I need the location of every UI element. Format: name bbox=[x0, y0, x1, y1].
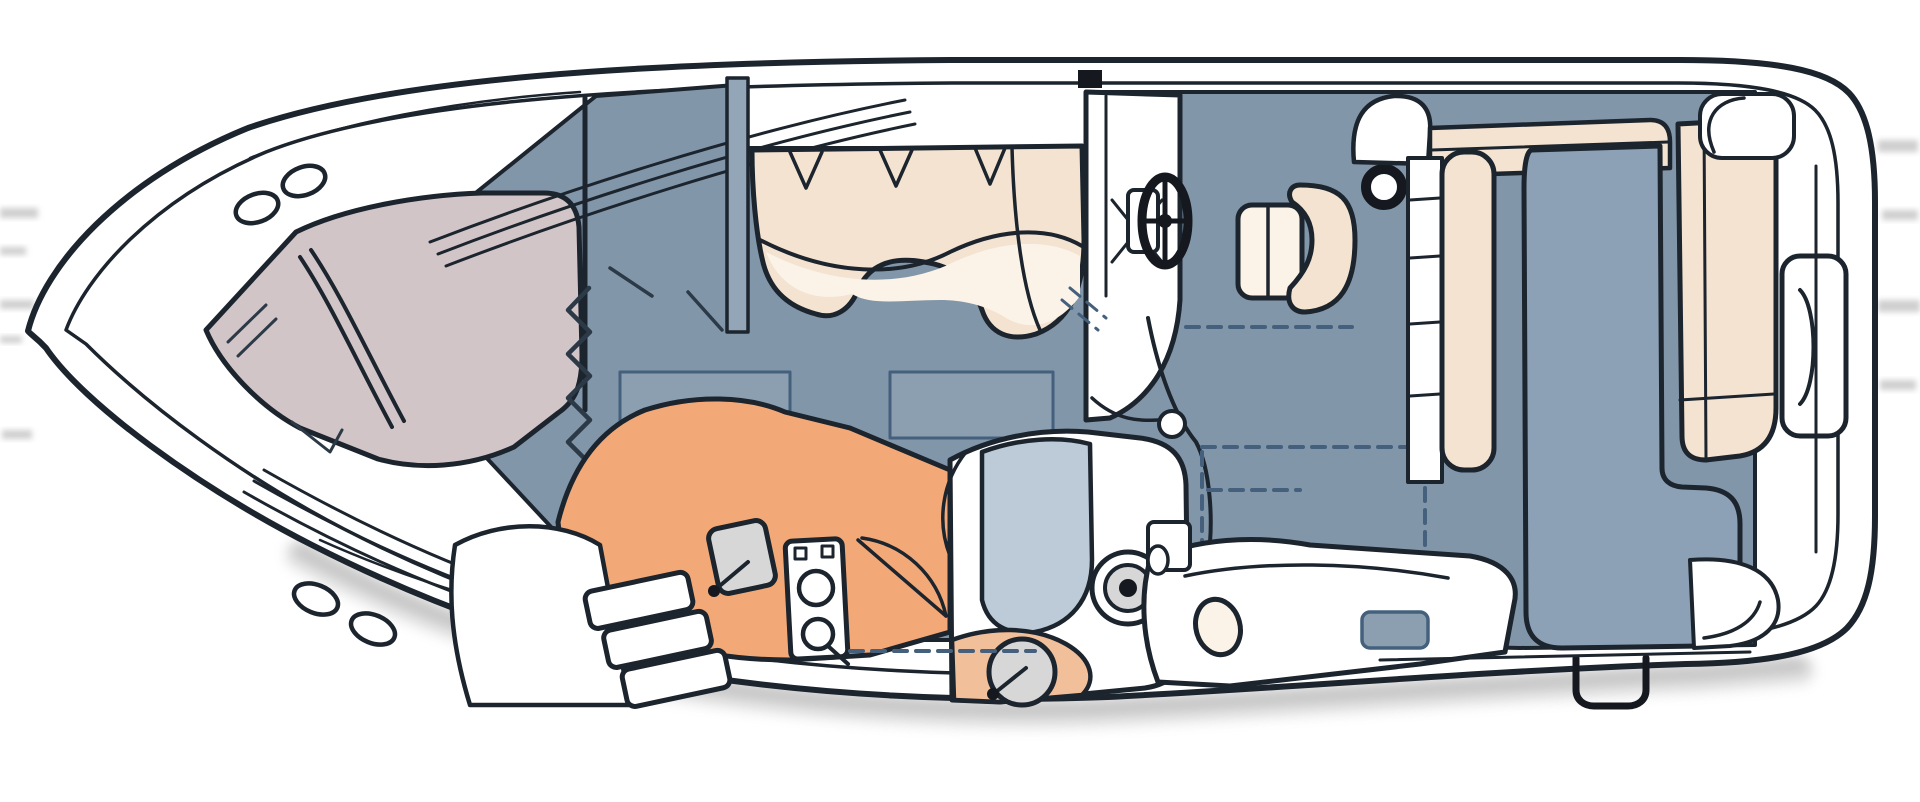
vent-icon bbox=[1078, 70, 1102, 88]
seatback-left: Sun pad left backrest bbox=[1408, 152, 1494, 482]
walkthrough-strip: Windshield walk-through strip bbox=[727, 78, 748, 332]
galley-sink: Galley sink with faucet bbox=[707, 519, 777, 597]
floorplan-image: Drop shadow under hull Boat hull outline… bbox=[0, 0, 1920, 802]
cup-holder-icon: Cup holder ring bbox=[1366, 169, 1402, 205]
boat-floorplan-svg: Drop shadow under hull Boat hull outline… bbox=[0, 0, 1920, 802]
seatback-right: Sun pad aft backrest bbox=[1678, 120, 1776, 460]
berth-hatch: Mid-cabin hatch bbox=[1362, 612, 1428, 648]
stove: Two-burner stove bbox=[785, 539, 848, 664]
shower-pan: Shower pan bbox=[982, 439, 1092, 632]
helm-seat: Helm seat bbox=[1238, 185, 1355, 312]
